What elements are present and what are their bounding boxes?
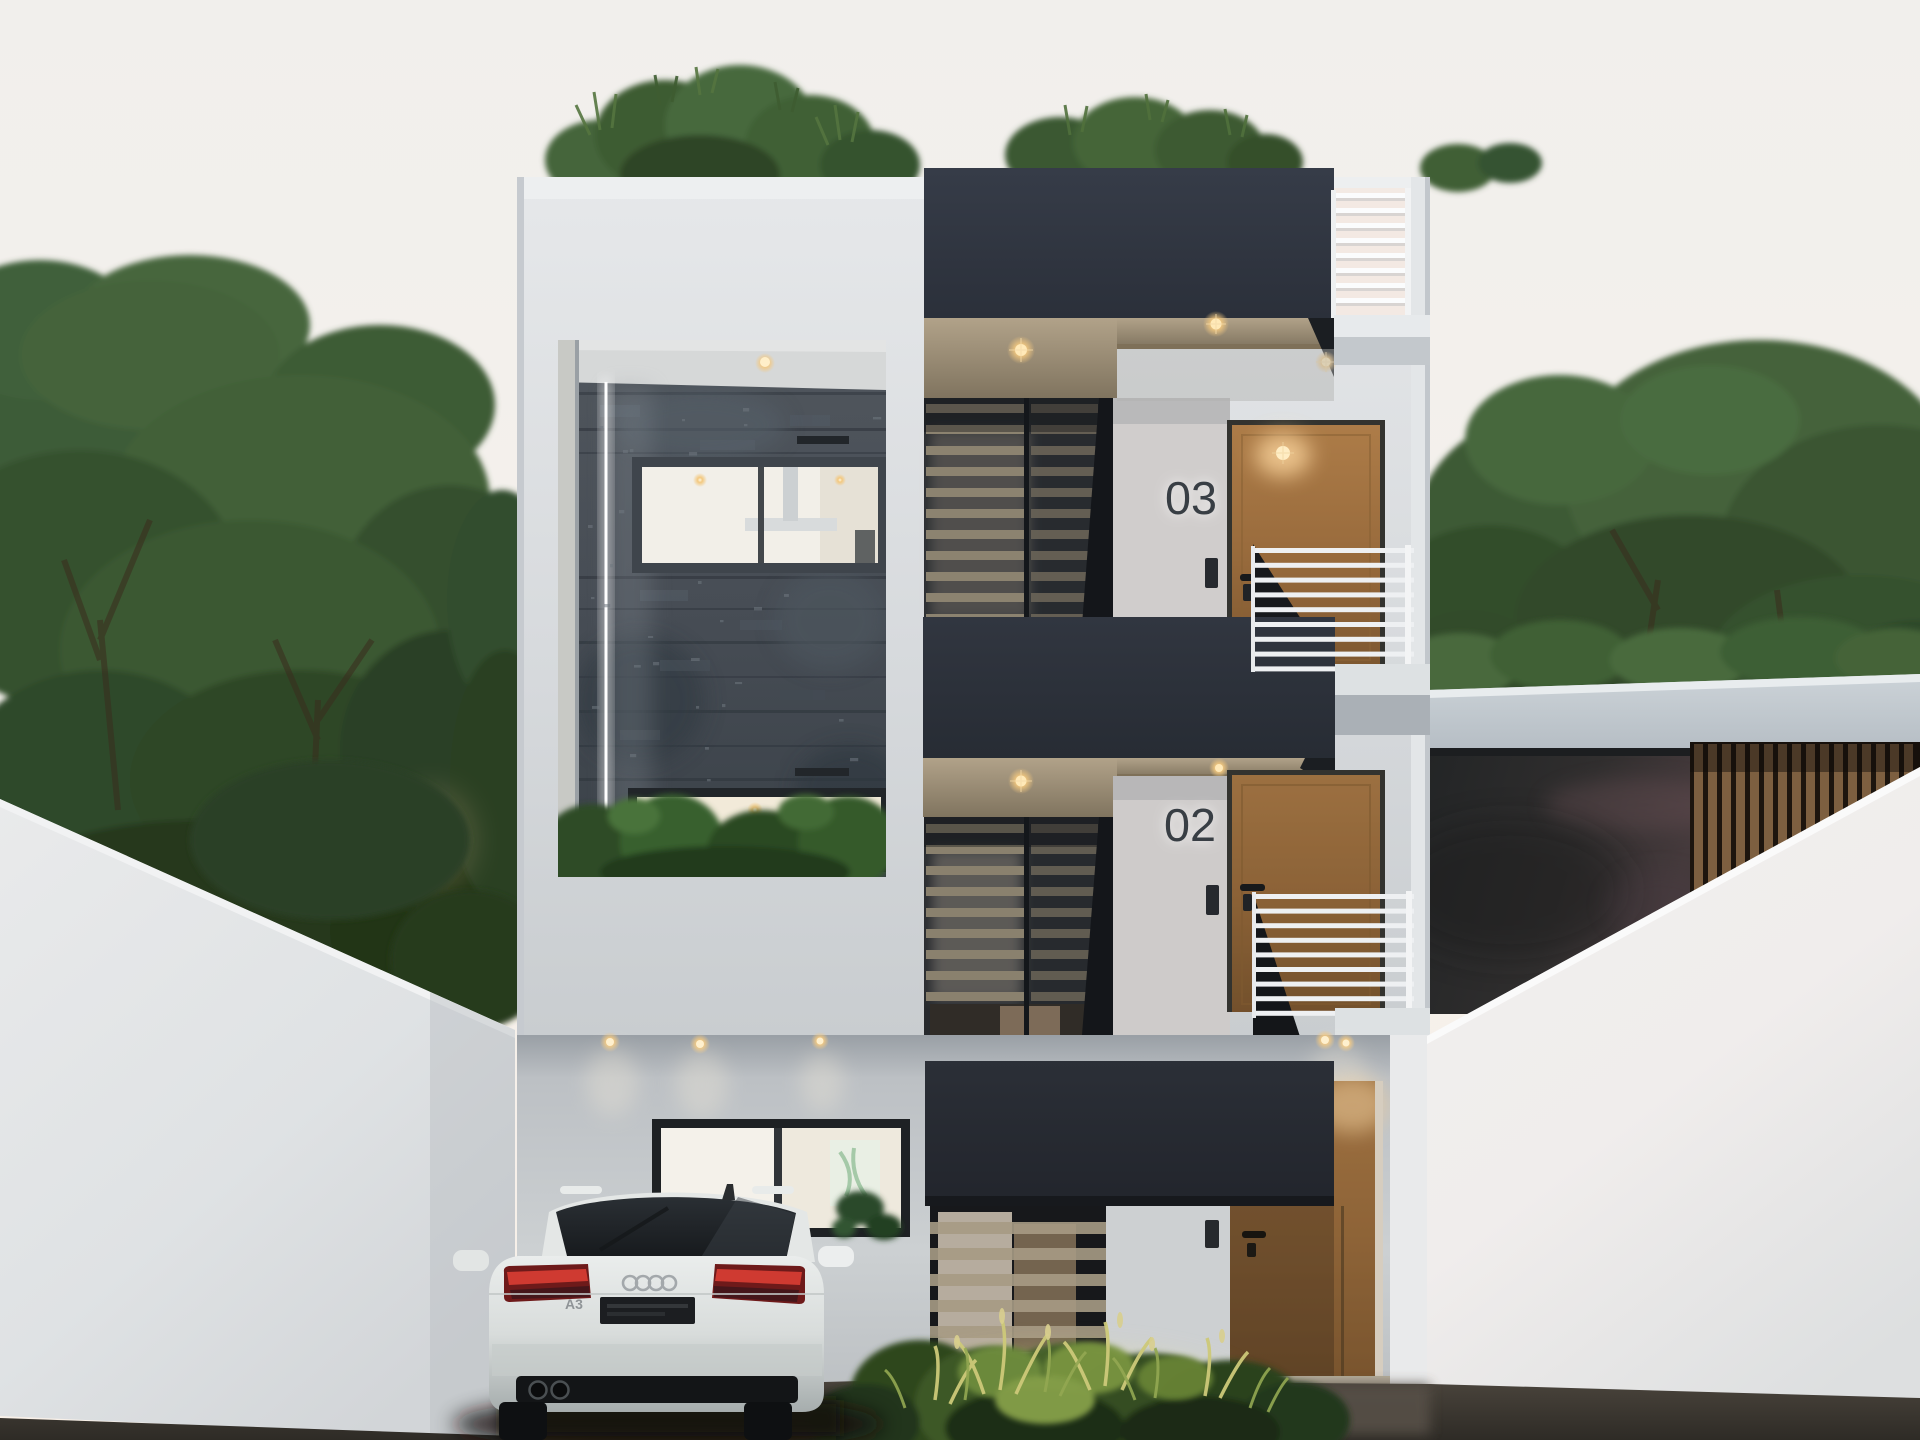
svg-text:A3: A3 <box>565 1296 583 1312</box>
svg-text:02: 02 <box>1164 799 1216 851</box>
svg-text:03: 03 <box>1165 472 1217 524</box>
